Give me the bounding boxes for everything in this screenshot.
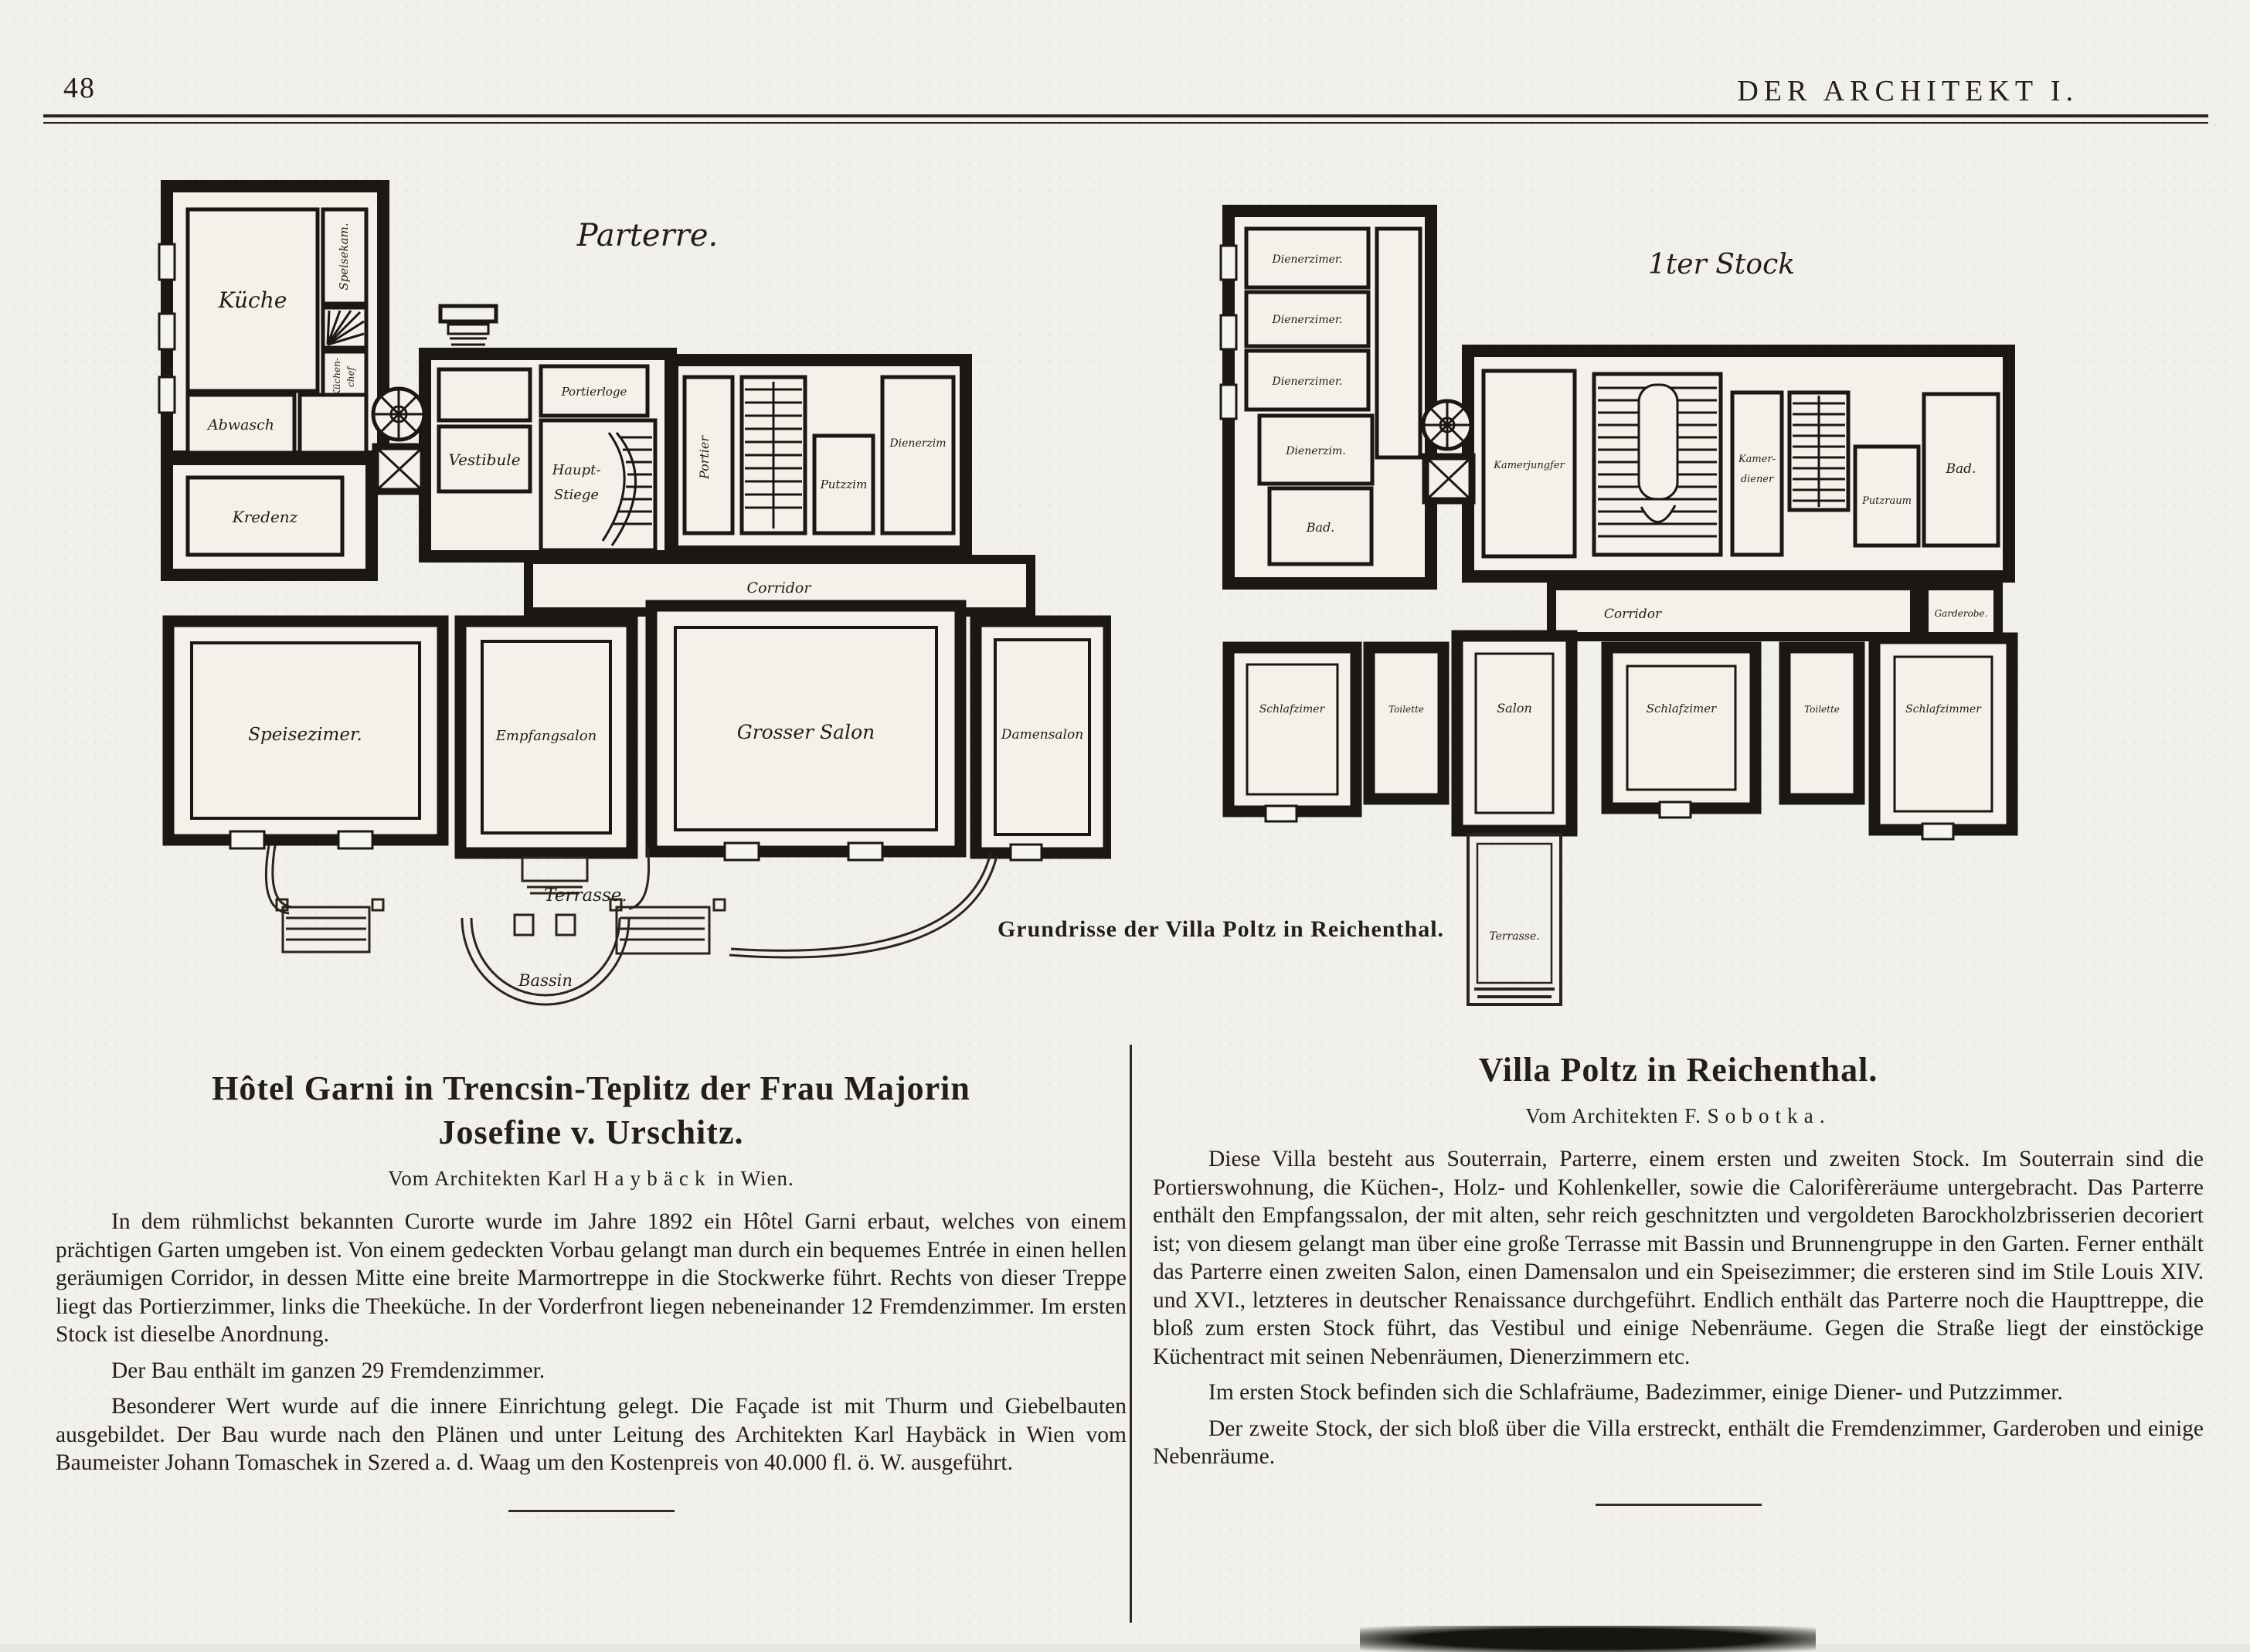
room-anteroom [439, 369, 530, 420]
room-toilette-2 [1785, 648, 1859, 799]
room-label-kuechenchef-2: chef [345, 365, 356, 387]
room-label-corridor: Corridor [747, 580, 813, 597]
page-number: 48 [63, 71, 96, 105]
terrace-drawing [266, 845, 997, 1004]
scan-artifact [1360, 1626, 1816, 1652]
article-title-line2: Josefine v. Urschitz. [439, 1113, 744, 1151]
journal-title: DER ARCHITEKT I. [1737, 74, 2078, 108]
article-title-line1: Hôtel Garni in Trencsin-Teplitz der Frau… [212, 1069, 970, 1107]
paragraph: Der zweite Stock, der sich bloß über die… [1153, 1415, 2204, 1471]
architect-name: Haybäck [593, 1167, 712, 1190]
room-label-kammerdiener-1: Kamer- [1738, 454, 1776, 465]
room-label-abwasch: Abwasch [206, 416, 274, 433]
room-label-bad-rechts: Bad. [1946, 461, 1976, 477]
floor-plan-erster-stock: 1ter Stock [1212, 199, 2100, 1026]
room-label-grosser-salon: Grosser Salon [737, 721, 875, 743]
article-end-rule [508, 1510, 675, 1512]
article-byline: Vom Architekten Karl Haybäck in Wien. [56, 1167, 1127, 1191]
architect-name: Sobotka. [1708, 1104, 1831, 1127]
article-title: Hôtel Garni in Trencsin-Teplitz der Frau… [56, 1066, 1127, 1154]
journal-page: 48 DER ARCHITEKT I. Parterre. [0, 0, 2250, 1644]
room-label-kammerjungfer: Kamerjungfer [1493, 460, 1565, 471]
plan-title-parterre: Parterre. [576, 218, 718, 253]
paragraph: Diese Villa besteht aus Souterrain, Part… [1153, 1145, 2204, 1371]
paragraph: Der Bau enthält im ganzen 29 Fremdenzimm… [56, 1357, 1127, 1385]
room-label-hauptstiege-2: Stiege [554, 487, 599, 503]
room-label-dienerzimmer-1: Dienerzimer. [1272, 253, 1343, 266]
room-label-dienerzimmer-4: Dienerzim. [1285, 445, 1346, 457]
wing-corridor [1377, 229, 1420, 457]
room-label-hauptstiege-1: Haupt- [552, 462, 601, 478]
paragraph: Besonderer Wert wurde auf die innere Ein… [56, 1392, 1127, 1477]
room-label-schlafzimmer-3: Schlafzimmer [1905, 703, 1982, 716]
room-label-speisekammer: Speisekam. [337, 223, 351, 290]
room-label-kuechenchef-1: Küchen- [331, 358, 342, 397]
room-label-schlafzimmer-2: Schlafzimer [1647, 702, 1717, 716]
room-label-vestibule: Vestibule [448, 450, 520, 469]
room-toilette-1 [1369, 648, 1443, 799]
floor-plan-parterre: Parterre. [153, 175, 1111, 1025]
room-label-portier: Portier [697, 435, 712, 480]
article-byline: Vom Architekten F. Sobotka. [1153, 1104, 2204, 1128]
room-label-toilette-2: Toilette [1804, 704, 1840, 715]
column-divider [1130, 1045, 1132, 1623]
room-label-putzraum: Putzraum [1861, 495, 1912, 507]
room-label-bad-links: Bad. [1306, 520, 1335, 535]
room-label-dienerzimmer: Dienerzim [889, 437, 946, 450]
header-double-rule [43, 114, 2208, 124]
stock-walls [1229, 211, 2012, 831]
label-bassin: Bassin [518, 971, 573, 990]
room-label-empfangssalon: Empfangsalon [495, 728, 596, 744]
parterre-walls [167, 186, 1109, 853]
article-title: Villa Poltz in Reichenthal. [1153, 1048, 2204, 1092]
room-label-corridor: Corridor [1604, 607, 1662, 622]
room-label-dienerzimmer-3: Dienerzimer. [1272, 376, 1343, 388]
room-label-salon: Salon [1497, 701, 1532, 716]
room-label-speisezimmer: Speisezimer. [248, 725, 362, 745]
room-label-toilette-1: Toilette [1388, 704, 1424, 715]
plan-title-erster-stock: 1ter Stock [1648, 249, 1795, 280]
room-label-dienerzimmer-2: Dienerzimer. [1272, 314, 1343, 326]
room-label-schlafzimmer-1: Schlafzimer [1259, 703, 1326, 716]
room-hauptstiege [541, 420, 655, 550]
room-service [300, 395, 366, 453]
figure-caption: Grundrisse der Villa Poltz in Reichentha… [912, 916, 1530, 943]
paragraph: In dem rühmlichst bekannten Curorte wurd… [56, 1208, 1127, 1349]
article-title-line1: Villa Poltz in Reichenthal. [1479, 1051, 1878, 1089]
room-label-garderobe: Garderobe. [1935, 608, 1988, 619]
room-label-damensalon: Damensalon [1001, 727, 1083, 743]
label-terrasse: Terrasse. [544, 885, 627, 906]
room-label-kammerdiener-2: diener [1741, 474, 1774, 485]
article-hotel-garni: Hôtel Garni in Trencsin-Teplitz der Frau… [56, 1066, 1127, 1512]
room-label-kueche: Küche [218, 287, 287, 313]
article-villa-poltz: Villa Poltz in Reichenthal. Vom Architek… [1153, 1048, 2204, 1506]
room-label-kredenz: Kredenz [232, 508, 298, 526]
room-label-portierloge: Portierloge [561, 385, 627, 399]
room-dienerzimmer [882, 377, 953, 533]
room-label-putzzimmer: Putzzim [820, 478, 868, 491]
paragraph: Im ersten Stock befinden sich die Schlaf… [1153, 1378, 2204, 1407]
article-end-rule [1596, 1504, 1762, 1506]
